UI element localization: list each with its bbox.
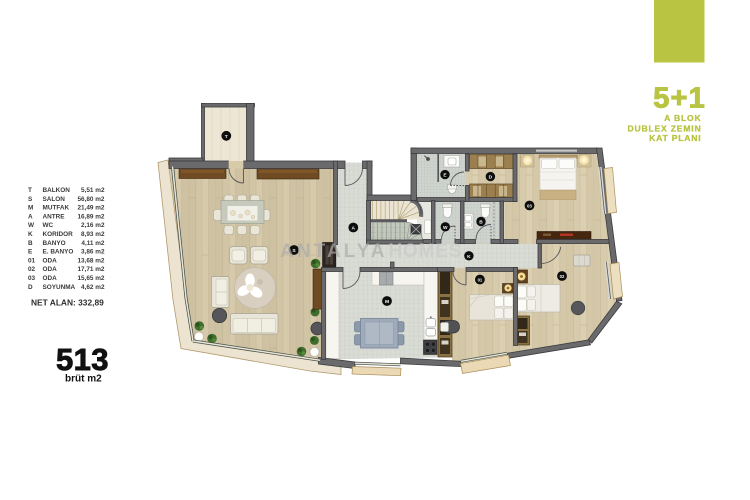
svg-text:SALON: SALON (43, 196, 66, 203)
svg-text:5,51 m2: 5,51 m2 (81, 187, 105, 194)
svg-text:ANTALYA: ANTALYA (280, 241, 388, 262)
svg-text:T: T (28, 187, 32, 194)
svg-text:03: 03 (527, 203, 532, 208)
svg-text:A: A (352, 226, 356, 232)
svg-text:4,62 m2: 4,62 m2 (81, 284, 105, 291)
svg-text:ANTRE: ANTRE (43, 213, 66, 220)
svg-text:01: 01 (28, 257, 36, 264)
svg-text:WC: WC (43, 222, 54, 229)
svg-text:KAT PLANI: KAT PLANI (649, 133, 701, 143)
svg-text:B: B (28, 240, 33, 247)
svg-text:W: W (443, 225, 448, 231)
svg-text:03: 03 (28, 275, 36, 282)
svg-text:HOMES: HOMES (389, 241, 463, 262)
svg-text:K: K (28, 231, 33, 238)
svg-text:5+1: 5+1 (653, 83, 706, 115)
svg-text:D: D (489, 175, 493, 181)
svg-text:S: S (28, 196, 33, 203)
svg-text:DUBLEX ZEMIN: DUBLEX ZEMIN (627, 123, 701, 133)
svg-text:M: M (28, 205, 33, 212)
svg-text:15,65 m2: 15,65 m2 (77, 275, 104, 282)
svg-text:T: T (225, 134, 228, 140)
svg-text:56,80 m2: 56,80 m2 (77, 196, 104, 203)
svg-text:BANYO: BANYO (43, 240, 66, 247)
svg-text:16,89 m2: 16,89 m2 (77, 213, 104, 220)
svg-text:W: W (28, 222, 35, 229)
svg-text:513: 513 (56, 342, 109, 377)
svg-text:brüt m2: brüt m2 (65, 374, 102, 385)
svg-text:13,68 m2: 13,68 m2 (77, 257, 104, 264)
svg-text:21,49 m2: 21,49 m2 (77, 205, 104, 212)
svg-text:A BLOK: A BLOK (664, 113, 701, 123)
svg-text:A: A (28, 213, 33, 220)
svg-text:02: 02 (28, 266, 36, 273)
svg-text:3,86 m2: 3,86 m2 (81, 249, 105, 256)
svg-text:E: E (28, 249, 33, 256)
svg-text:ODA: ODA (43, 266, 58, 273)
svg-text:ODA: ODA (43, 275, 58, 282)
svg-text:2,16 m2: 2,16 m2 (81, 222, 105, 229)
svg-text:NET ALAN: 332,89: NET ALAN: 332,89 (31, 298, 104, 308)
svg-text:D: D (28, 284, 33, 291)
svg-text:MUTFAK: MUTFAK (43, 205, 70, 212)
svg-text:8,93 m2: 8,93 m2 (81, 231, 105, 238)
svg-text:B: B (479, 220, 483, 226)
svg-text:E. BANYO: E. BANYO (43, 249, 74, 256)
svg-text:02: 02 (560, 274, 565, 279)
svg-text:ODA: ODA (43, 257, 58, 264)
svg-text:17,71 m2: 17,71 m2 (77, 266, 104, 273)
svg-text:01: 01 (478, 277, 483, 282)
svg-text:BALKON: BALKON (43, 187, 71, 194)
svg-text:SOYUNMA: SOYUNMA (43, 284, 76, 291)
svg-text:4,11 m2: 4,11 m2 (81, 240, 105, 247)
svg-text:M: M (385, 299, 389, 305)
svg-text:K: K (467, 254, 471, 260)
svg-text:KORIDOR: KORIDOR (43, 231, 74, 238)
